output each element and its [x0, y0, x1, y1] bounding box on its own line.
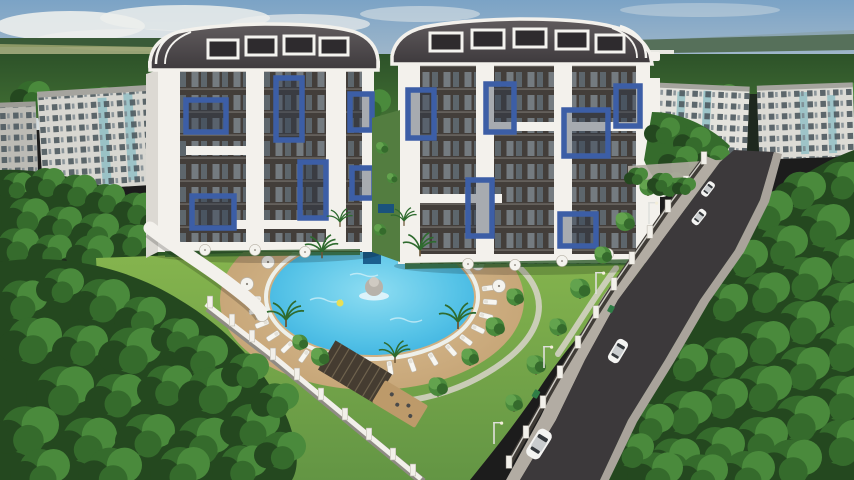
render-canvas	[0, 0, 854, 480]
blue-balcony-frame	[192, 196, 234, 228]
courtyard-pool	[378, 204, 394, 213]
blue-balcony-frame	[616, 86, 640, 126]
architectural-render	[0, 0, 854, 480]
blue-balcony-frame	[564, 110, 608, 156]
blue-balcony-frame	[350, 94, 372, 130]
blue-balcony-frame	[408, 90, 434, 138]
towers	[146, 19, 669, 275]
pool-float	[337, 300, 344, 307]
blue-balcony-frame	[486, 84, 514, 132]
tower-facade	[400, 60, 648, 264]
blue-balcony-frame	[352, 168, 374, 198]
blue-balcony-frame	[560, 214, 596, 246]
tower-left	[146, 24, 380, 258]
blue-balcony-frame	[186, 100, 226, 132]
blue-balcony-frame	[276, 78, 302, 140]
courtyard-garden	[372, 110, 400, 262]
blue-balcony-frame	[300, 162, 326, 218]
panel-block	[757, 82, 854, 159]
blue-balcony-frame	[468, 180, 492, 236]
